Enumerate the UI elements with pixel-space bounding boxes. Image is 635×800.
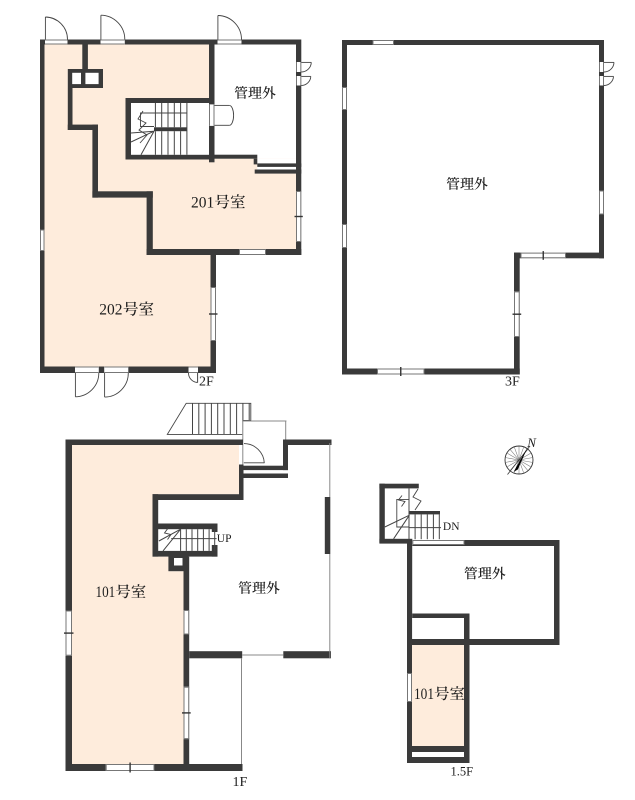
svg-text:UP: UP	[217, 533, 232, 545]
svg-text:2F: 2F	[199, 375, 214, 390]
svg-text:3F: 3F	[505, 375, 520, 390]
svg-text:201: 201	[191, 194, 214, 211]
svg-text:101: 101	[96, 584, 116, 601]
svg-text:N: N	[526, 435, 537, 450]
svg-text:1.5F: 1.5F	[451, 764, 474, 778]
svg-text:202: 202	[99, 302, 122, 319]
svg-text:DN: DN	[443, 521, 460, 533]
svg-text:101: 101	[414, 686, 434, 703]
svg-text:1F: 1F	[233, 775, 248, 790]
